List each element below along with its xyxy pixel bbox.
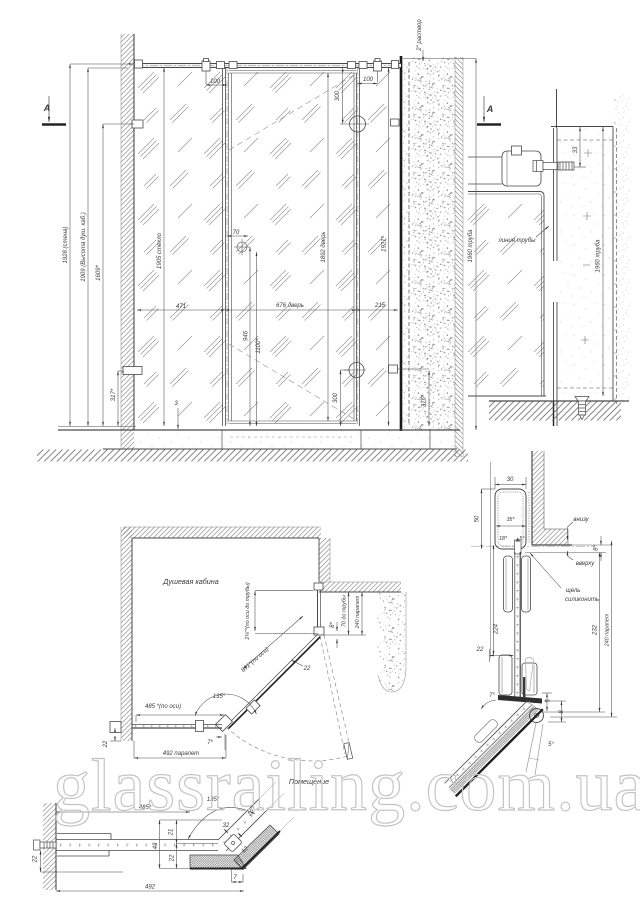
- svg-text:300: 300: [333, 392, 339, 403]
- svg-text:5: 5: [546, 699, 552, 703]
- svg-text:676 дверь: 676 дверь: [276, 303, 304, 309]
- svg-text:135°: 135°: [213, 694, 226, 700]
- svg-text:316*: 316*: [422, 394, 428, 407]
- svg-text:22: 22: [476, 647, 484, 653]
- svg-text:240 парапет: 240 парапет: [605, 613, 611, 647]
- svg-text:22: 22: [303, 666, 311, 672]
- svg-text:35*: 35*: [506, 517, 515, 523]
- svg-text:492: 492: [145, 885, 156, 891]
- svg-text:1921*: 1921*: [382, 235, 388, 251]
- svg-text:946: 946: [244, 330, 250, 341]
- svg-text:glassrailing.com.ua: glassrailing.com.ua: [53, 745, 640, 827]
- svg-text:щель: щель: [566, 588, 581, 594]
- svg-text:7°: 7°: [489, 693, 495, 699]
- svg-text:21: 21: [169, 829, 175, 837]
- svg-text:линия трубы: линия трубы: [497, 238, 536, 244]
- svg-text:224: 224: [494, 623, 500, 635]
- svg-text:30: 30: [507, 477, 514, 483]
- svg-text:691*(по оси): 691*(по оси): [240, 647, 270, 674]
- svg-text:1100*: 1100*: [256, 338, 262, 354]
- svg-text:1905 стекло: 1905 стекло: [157, 232, 163, 269]
- svg-text:215: 215: [374, 303, 386, 309]
- svg-text:317*: 317*: [111, 388, 117, 401]
- svg-text:22: 22: [33, 855, 39, 863]
- svg-text:22: 22: [170, 854, 176, 862]
- svg-text:2" раствор: 2" раствор: [417, 19, 423, 52]
- svg-text:300: 300: [335, 90, 341, 101]
- svg-text:Душевая кабина: Душевая кабина: [162, 577, 219, 586]
- svg-text:240 парапет: 240 парапет: [355, 595, 361, 629]
- svg-text:43: 43: [153, 842, 159, 849]
- svg-text:8: 8: [559, 710, 565, 714]
- svg-text:5°: 5°: [519, 536, 525, 542]
- svg-text:100: 100: [210, 79, 221, 85]
- svg-text:1892 дверь: 1892 дверь: [321, 231, 327, 262]
- svg-text:2¼"*(по оси до трубы): 2¼"*(по оси до трубы): [245, 582, 251, 640]
- svg-text:1909 (Высота душ. каб.): 1909 (Высота душ. каб.): [81, 212, 87, 281]
- svg-text:471: 471: [176, 304, 186, 310]
- svg-text:50: 50: [475, 515, 481, 522]
- svg-text:7: 7: [233, 875, 237, 881]
- svg-text:A: A: [43, 103, 51, 113]
- svg-text:1928 (стена): 1928 (стена): [63, 227, 69, 264]
- svg-text:232: 232: [593, 624, 599, 636]
- svg-text:70: 70: [233, 230, 240, 236]
- svg-text:485 *(по оси): 485 *(по оси): [145, 704, 181, 710]
- svg-text:1960 труба: 1960 труба: [596, 239, 602, 273]
- svg-text:силиконить: силиконить: [565, 597, 599, 603]
- svg-text:8*: 8*: [594, 544, 600, 550]
- svg-text:100: 100: [363, 77, 374, 83]
- svg-text:A: A: [486, 104, 494, 114]
- svg-text:70 до трубы: 70 до трубы: [342, 595, 348, 627]
- svg-text:33: 33: [573, 146, 579, 153]
- svg-text:внизу: внизу: [573, 517, 589, 523]
- svg-text:1609*: 1609*: [96, 264, 102, 280]
- svg-text:18*: 18*: [499, 536, 508, 542]
- svg-text:8*: 8*: [330, 621, 336, 627]
- svg-text:вверху: вверху: [576, 561, 596, 567]
